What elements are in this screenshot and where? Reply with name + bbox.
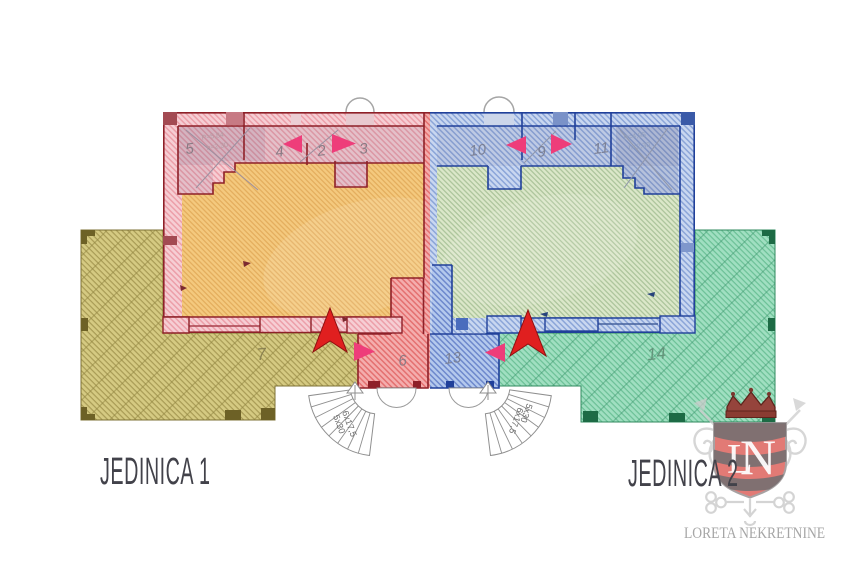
svg-text:JEDINICA 2: JEDINICA 2 [628,453,739,494]
svg-text:JEDINICA 1: JEDINICA 1 [100,451,211,492]
